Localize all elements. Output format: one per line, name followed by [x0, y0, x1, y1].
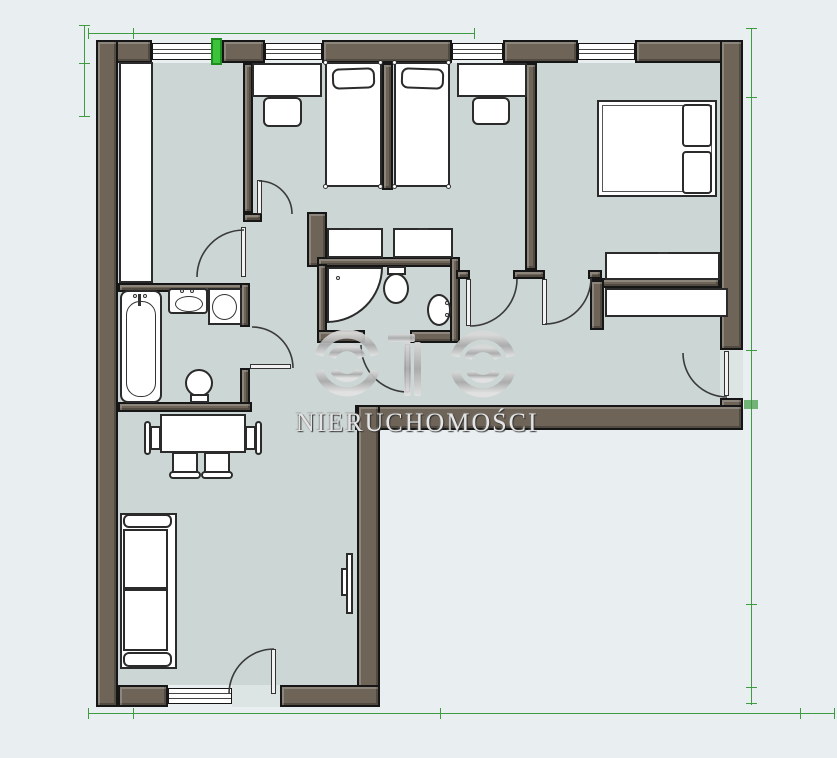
- dim-tick: [79, 116, 90, 117]
- bedpost: [323, 184, 328, 189]
- bathtub-basin: [126, 301, 156, 397]
- door-bedroom1: [257, 180, 262, 214]
- wall-living-right: [357, 405, 380, 707]
- wardrobe-hallway: [605, 288, 728, 317]
- dim-tick: [746, 703, 757, 704]
- dim-tick: [746, 350, 757, 351]
- bedpost: [378, 184, 383, 189]
- wall-bottom-1: [118, 685, 168, 707]
- dim-tick: [88, 708, 89, 719]
- dim-tick: [133, 28, 134, 39]
- pillow-bedroom2: [401, 67, 445, 89]
- dim-tick: [746, 687, 757, 688]
- bathtub-faucet: [143, 294, 147, 298]
- dim-tick: [133, 708, 134, 719]
- dim-tick: [746, 604, 757, 605]
- chair-bottom-2-bar: [201, 471, 233, 479]
- door-bedroom2: [466, 279, 471, 326]
- chair-bedroom1: [263, 97, 302, 127]
- armchair-left-seat: [150, 426, 161, 450]
- basin-faucet: [180, 289, 184, 293]
- dim-top: [88, 33, 475, 34]
- window-living: [168, 688, 232, 704]
- dim-tick: [800, 708, 801, 719]
- dim-green-marker: [744, 400, 758, 409]
- tv-panel: [346, 553, 353, 614]
- bedpost: [392, 184, 397, 189]
- toilet-wc-bowl: [383, 273, 409, 304]
- door-entrance: [271, 649, 276, 694]
- armchair-right-seat: [245, 426, 256, 450]
- washbasin-wc: [427, 294, 451, 326]
- wall-bath-bottom: [118, 402, 252, 412]
- wall-top-2: [222, 40, 265, 63]
- bedpost: [378, 60, 383, 65]
- washbasin-wc-faucet: [445, 313, 449, 317]
- sofa-cushion-1: [123, 529, 168, 589]
- dim-tick: [746, 97, 757, 98]
- wall-hall-nook-left: [590, 280, 604, 330]
- basin-faucet: [190, 289, 194, 293]
- wall-bottom-2: [280, 685, 380, 707]
- door-bathroom: [250, 364, 291, 369]
- sofa-armrest-top: [123, 514, 172, 528]
- dim-tick: [79, 25, 90, 26]
- sofa-armrest-bottom: [123, 652, 172, 667]
- desk-bedroom1: [252, 63, 322, 97]
- floorplan-canvas: NIERUCHOMOŚCI: [0, 0, 837, 758]
- basin-bowl: [175, 296, 203, 312]
- wall-left: [96, 40, 118, 707]
- bedpost: [446, 184, 451, 189]
- dim-bottom: [88, 713, 835, 714]
- desk-bedroom2: [457, 63, 527, 97]
- door-side-exterior: [724, 351, 729, 396]
- toilet-bathroom-tank: [190, 394, 209, 403]
- chair-bottom-1-bar: [169, 471, 201, 479]
- washbasin-wc-faucet: [445, 301, 449, 305]
- window-bedroom2: [452, 43, 503, 60]
- door-room1: [241, 227, 246, 277]
- green-wall-marker: [211, 38, 222, 65]
- shower-drain: [336, 276, 340, 280]
- window-bedroom1: [265, 43, 322, 60]
- wall-wc-bottom-left: [317, 330, 365, 343]
- dim-tick: [88, 28, 89, 39]
- dim-tick: [440, 708, 441, 719]
- watermark-text: NIERUCHOMOŚCI: [296, 408, 539, 438]
- dim-left: [84, 25, 85, 117]
- pillow-master-2: [682, 151, 712, 194]
- sofa-cushion-2: [123, 589, 168, 651]
- armchair-right-back: [255, 421, 262, 455]
- bathtub: [120, 290, 162, 403]
- bathtub-tap: [138, 294, 141, 306]
- dining-table: [160, 414, 246, 453]
- pillow-master-1: [682, 104, 712, 147]
- washing-machine-drum: [212, 294, 237, 320]
- door-wc: [405, 344, 410, 392]
- pillow-bedroom1: [332, 67, 376, 89]
- window-master: [578, 43, 635, 60]
- toilet-bathroom-bowl: [185, 369, 213, 397]
- door-master: [542, 279, 547, 325]
- dim-tick: [834, 708, 835, 719]
- wall-hall-door-band-1: [456, 270, 470, 279]
- wardrobe-master: [605, 252, 720, 280]
- wardrobe-bedroom2: [393, 228, 453, 258]
- dim-tick: [79, 63, 90, 64]
- bedpost: [323, 60, 328, 65]
- washbasin-bathroom: [168, 288, 208, 314]
- wall-top-3: [322, 40, 452, 63]
- bedpost: [392, 60, 397, 65]
- bathtub-faucet: [133, 294, 137, 298]
- dim-tick: [474, 28, 475, 39]
- dim-tick: [746, 28, 757, 29]
- wall-hall-door-band-2: [513, 270, 545, 279]
- chair-bedroom2: [472, 97, 510, 125]
- wall-bed-divider: [382, 63, 393, 190]
- built-in-unit: [119, 62, 153, 283]
- wall-bedroom1-stub: [243, 213, 262, 222]
- wall-top-4: [503, 40, 578, 63]
- wardrobe-bedroom1: [327, 228, 383, 258]
- window-room1: [152, 43, 212, 60]
- washing-machine: [208, 288, 242, 325]
- bedpost: [446, 60, 451, 65]
